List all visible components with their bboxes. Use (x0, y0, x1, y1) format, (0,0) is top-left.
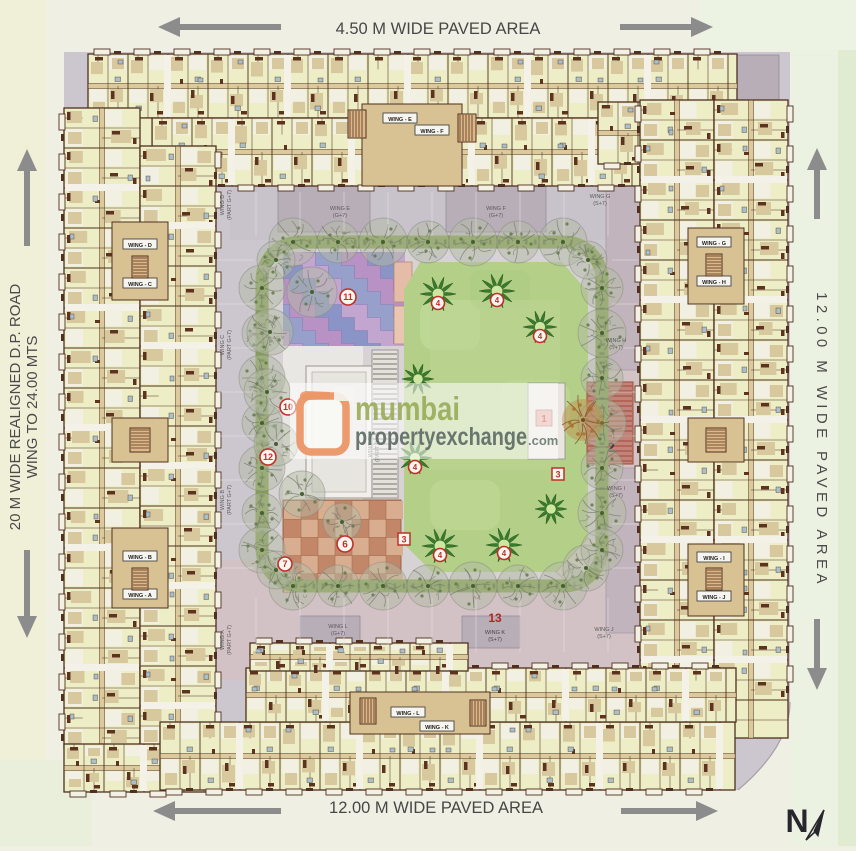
svg-text:WING C: WING C (220, 335, 226, 355)
svg-text:4: 4 (502, 549, 507, 558)
svg-text:(S+7): (S+7) (609, 493, 623, 499)
svg-text:3: 3 (555, 470, 560, 480)
svg-text:(G+7): (G+7) (331, 631, 345, 637)
svg-text:12: 12 (263, 452, 273, 462)
svg-text:(S+7): (S+7) (488, 637, 502, 643)
svg-text:WING L: WING L (328, 624, 348, 630)
svg-text:12.00 M WIDE PAVED AREA: 12.00 M WIDE PAVED AREA (813, 292, 830, 588)
svg-text:(G+7): (G+7) (333, 213, 347, 219)
svg-text:WING - L: WING - L (396, 711, 420, 717)
svg-text:WING E: WING E (330, 206, 350, 212)
svg-text:(PART G+7): (PART G+7) (227, 485, 233, 515)
svg-text:(S+7): (S+7) (593, 201, 607, 207)
svg-text:(S+7): (S+7) (597, 634, 611, 640)
svg-text:(S+7): (S+7) (609, 345, 623, 351)
svg-text:11: 11 (343, 292, 353, 302)
svg-text:7: 7 (282, 559, 287, 569)
svg-text:WING - I: WING - I (703, 556, 725, 562)
svg-text:.com: .com (528, 433, 558, 448)
svg-text:WING - F: WING - F (420, 129, 444, 135)
svg-text:WING - C: WING - C (128, 282, 152, 288)
svg-text:(PART G+7): (PART G+7) (227, 625, 233, 655)
svg-text:WING - H: WING - H (702, 280, 726, 286)
svg-text:WING J: WING J (594, 627, 613, 633)
svg-text:WING G: WING G (590, 194, 611, 200)
svg-text:propertyexchange: propertyexchange (355, 423, 527, 451)
svg-text:12.00 M WIDE PAVED AREA: 12.00 M WIDE PAVED AREA (329, 799, 543, 817)
svg-text:WING - B: WING - B (128, 555, 152, 561)
svg-text:(PART G+7): (PART G+7) (227, 330, 233, 360)
svg-text:4: 4 (438, 551, 443, 560)
svg-text:WING B: WING B (220, 490, 226, 510)
svg-text:4: 4 (495, 296, 500, 305)
svg-text:4: 4 (436, 299, 441, 308)
svg-text:WING - K: WING - K (425, 725, 449, 731)
svg-text:(G+7): (G+7) (489, 213, 503, 219)
svg-text:(PART G+7): (PART G+7) (227, 190, 233, 220)
svg-text:6: 6 (342, 540, 348, 551)
svg-text:4: 4 (413, 463, 418, 472)
svg-text:WING I: WING I (607, 486, 625, 492)
svg-text:4: 4 (538, 332, 543, 341)
svg-text:WING - J: WING - J (703, 595, 726, 601)
svg-text:WING - E: WING - E (388, 117, 412, 123)
svg-text:WING K: WING K (485, 630, 505, 636)
svg-text:13: 13 (488, 611, 502, 625)
svg-text:WING F: WING F (486, 206, 506, 212)
svg-text:20 M WIDE REALIGNED D.P. ROAD: 20 M WIDE REALIGNED D.P. ROAD (7, 284, 24, 531)
svg-text:WING - G: WING - G (702, 241, 726, 247)
svg-text:WING - A: WING - A (128, 593, 152, 599)
svg-text:WING A: WING A (220, 630, 226, 650)
svg-text:WING D: WING D (220, 195, 226, 215)
svg-text:3: 3 (401, 535, 406, 545)
svg-text:mumbai: mumbai (355, 390, 460, 427)
svg-text:WING TO 24.00 MTS: WING TO 24.00 MTS (24, 336, 41, 479)
svg-text:WING H: WING H (606, 338, 626, 344)
svg-text:4.50 M WIDE PAVED AREA: 4.50 M WIDE PAVED AREA (336, 20, 541, 38)
svg-text:N: N (785, 803, 808, 839)
svg-text:WING - D: WING - D (128, 243, 152, 249)
